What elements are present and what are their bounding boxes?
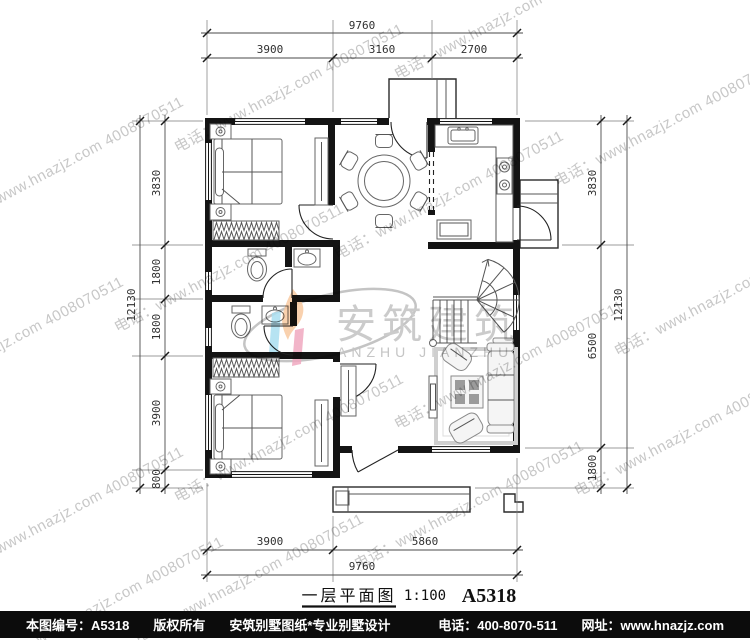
- drawing-title: 一层平面图: [301, 588, 396, 605]
- dining-chair: [340, 190, 360, 211]
- floor-plan-sheet: 9760 3900 3160 2700 12130 3830 1800 1800…: [0, 0, 750, 640]
- dim-bottom-seg1: 3900: [257, 535, 284, 548]
- window-bedroom2-left: [205, 395, 212, 450]
- window-dining-top: [341, 118, 377, 125]
- living-furniture: [429, 338, 516, 446]
- door-entry: [352, 450, 398, 472]
- dim-left-seg4: 3900: [150, 400, 163, 427]
- door-bath2: [264, 326, 293, 355]
- bathroom-bottom-furniture: [232, 306, 289, 338]
- footer-copyright: 版权所有: [153, 615, 205, 634]
- footer-bar: 本图编号：A5318 版权所有 安筑别墅图纸*专业别墅设计 电话：400-807…: [0, 611, 750, 638]
- window-bedroom2-bottom: [232, 471, 312, 478]
- entry-porch: [333, 487, 470, 512]
- footer-right: 电话：400-8070-511 网址：www.hnazjz.com: [438, 615, 724, 634]
- dimensions-left: 12130 3830 1800 1800 3900 800: [125, 115, 203, 494]
- dim-bottom-total: 9760: [349, 560, 376, 573]
- door-bedroom1: [299, 205, 333, 239]
- dining-chair: [376, 215, 393, 228]
- cased-opening-kitchen: [430, 152, 434, 210]
- sofa: [488, 350, 514, 426]
- dining-chair: [340, 150, 360, 171]
- dim-top-seg1: 3900: [257, 43, 284, 56]
- door-kitchen-side: [517, 206, 551, 240]
- window-bedroom1-left: [205, 143, 212, 200]
- toilet-tank: [232, 306, 250, 313]
- footer-left: 本图编号：A5318 版权所有 安筑别墅图纸*专业别墅设计: [26, 615, 390, 634]
- dim-left-seg1: 3830: [150, 170, 163, 197]
- footer-website: 网址：www.hnazjz.com: [581, 615, 724, 634]
- bedroom-bottom-left-furniture: [210, 358, 328, 474]
- corner-column-marker: [504, 494, 523, 512]
- window-bath1-left: [205, 272, 212, 290]
- dim-right-total: 12130: [612, 288, 625, 321]
- dining-chair: [409, 150, 429, 171]
- kitchen-furniture: [435, 125, 513, 242]
- bathroom-top-furniture: [248, 249, 321, 281]
- armchair: [440, 341, 474, 373]
- footer-sheet-number: 本图编号：A5318: [26, 615, 129, 634]
- dim-top-seg2: 3160: [369, 43, 396, 56]
- dim-right-seg3: 1800: [586, 455, 599, 482]
- drawing-scale: 1:100: [404, 588, 446, 604]
- dim-top-seg3: 2700: [461, 43, 488, 56]
- footer-phone: 电话：400-8070-511: [438, 615, 557, 634]
- stair-direction-arrow: [482, 259, 489, 266]
- armchair: [447, 410, 486, 445]
- dining-chair: [376, 135, 393, 148]
- bedroom-top-left-furniture: [210, 124, 328, 240]
- dimensions-top: 9760 3900 3160 2700: [201, 19, 523, 115]
- dim-right-seg2: 6500: [586, 333, 599, 360]
- dim-left-total: 12130: [125, 288, 138, 321]
- dining-chair: [409, 190, 429, 211]
- floor-plan-drawing: 9760 3900 3160 2700 12130 3830 1800 1800…: [0, 0, 750, 608]
- title-block: 一层平面图 1:100 A5318: [301, 585, 516, 607]
- dim-bottom-seg2: 5860: [412, 535, 439, 548]
- dim-left-seg5: 800: [150, 469, 163, 489]
- window-kitchen-top: [440, 118, 492, 125]
- side-table: [493, 338, 513, 343]
- window-living-bottom: [432, 446, 490, 453]
- door-bath1: [263, 269, 292, 298]
- hall-cabinet: [341, 366, 356, 416]
- dim-top-total: 9760: [349, 19, 376, 32]
- window-bedroom1-top: [235, 118, 305, 125]
- footer-brand: 安筑别墅图纸*专业别墅设计: [229, 615, 390, 634]
- rear-stoop: [389, 79, 456, 118]
- dim-right-seg1: 3830: [586, 170, 599, 197]
- window-bath2-left: [205, 328, 212, 346]
- dim-left-seg2: 1800: [150, 259, 163, 286]
- drawing-number: A5318: [462, 585, 516, 607]
- staircase: [430, 259, 520, 346]
- dim-left-seg3: 1800: [150, 314, 163, 341]
- dining-furniture: [340, 135, 429, 228]
- bed: [214, 395, 282, 459]
- toilet-tank: [248, 249, 266, 256]
